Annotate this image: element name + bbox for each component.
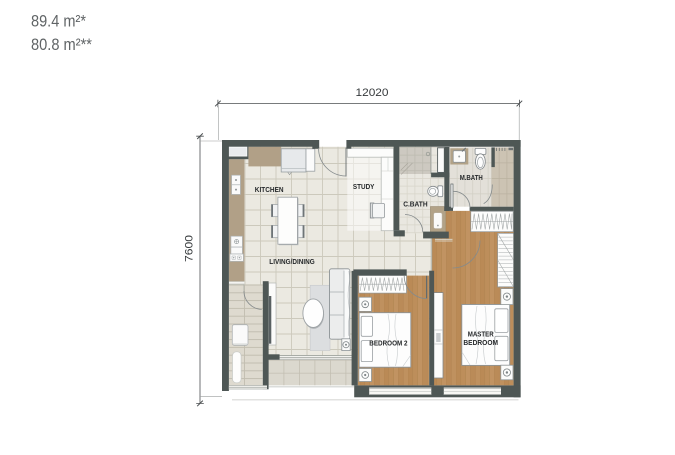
svg-text:C.BATH: C.BATH (403, 200, 427, 208)
svg-text:BEDROOM 2: BEDROOM 2 (369, 339, 407, 347)
svg-text:BEDROOM: BEDROOM (463, 339, 498, 347)
svg-text:12020: 12020 (356, 87, 389, 99)
svg-text:LIVING/DINING: LIVING/DINING (269, 258, 315, 266)
svg-text:MASTER: MASTER (468, 330, 494, 338)
svg-text:STUDY: STUDY (353, 183, 375, 191)
svg-text:80.8 m²**: 80.8 m²** (31, 36, 93, 54)
svg-text:89.4 m²*: 89.4 m²* (31, 12, 87, 30)
svg-text:7600: 7600 (184, 235, 196, 262)
svg-text:KITCHEN: KITCHEN (255, 186, 284, 194)
svg-text:M.BATH: M.BATH (460, 174, 483, 182)
